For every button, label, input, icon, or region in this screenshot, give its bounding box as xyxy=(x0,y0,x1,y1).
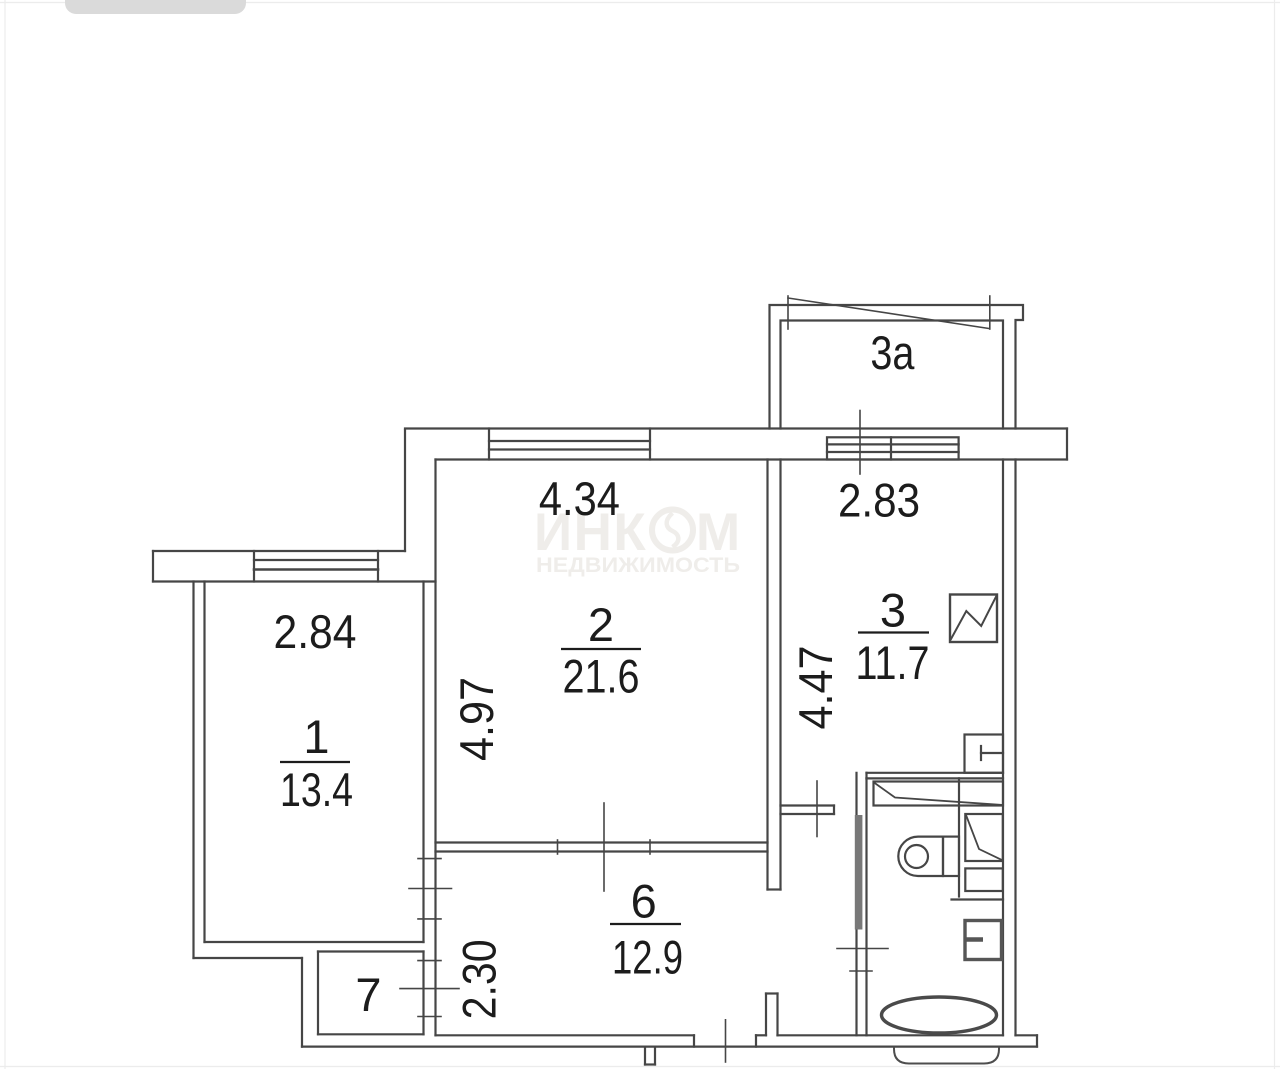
svg-text:7: 7 xyxy=(355,968,381,1021)
svg-text:21.6: 21.6 xyxy=(563,650,640,703)
svg-text:4.34: 4.34 xyxy=(539,472,620,525)
svg-text:11.7: 11.7 xyxy=(856,636,930,689)
svg-text:2.83: 2.83 xyxy=(838,474,920,527)
svg-text:1: 1 xyxy=(303,710,329,763)
svg-text:НЕДВИЖИМОСТЬ: НЕДВИЖИМОСТЬ xyxy=(536,554,740,577)
svg-text:2.84: 2.84 xyxy=(274,605,357,658)
svg-text:6: 6 xyxy=(631,875,657,928)
svg-text:3: 3 xyxy=(880,584,906,637)
svg-text:3a: 3a xyxy=(870,326,915,379)
svg-text:13.4: 13.4 xyxy=(280,763,353,816)
svg-text:4.97: 4.97 xyxy=(450,677,503,761)
svg-text:12.9: 12.9 xyxy=(612,931,683,984)
svg-text:2.30: 2.30 xyxy=(453,939,506,1019)
svg-text:2: 2 xyxy=(588,598,614,651)
svg-text:4.47: 4.47 xyxy=(789,646,842,730)
